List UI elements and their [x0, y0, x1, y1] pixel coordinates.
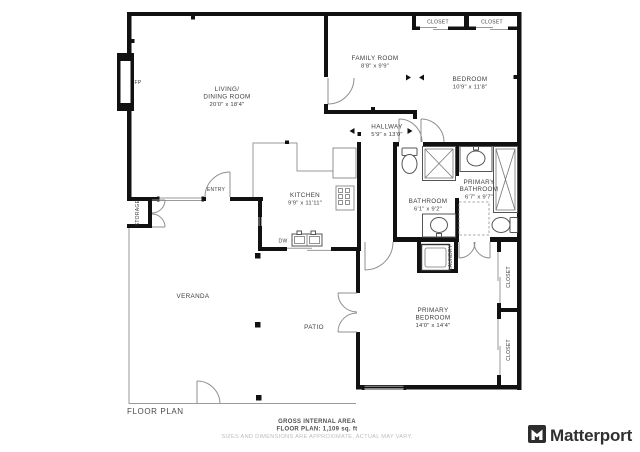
- room-dims-living: 20'0" x 18'4": [210, 102, 245, 108]
- room-label-bedroom: BEDROOM: [453, 76, 488, 83]
- room-dims-family: 8'8" x 9'9": [361, 64, 389, 70]
- room-label-living-1: LIVING/: [215, 86, 240, 93]
- footer-disclaimer: SIZES AND DIMENSIONS ARE APPROXIMATE, AC…: [221, 434, 412, 440]
- footer: GROSS INTERNAL AREA FLOOR PLAN: 1,109 sq…: [221, 419, 412, 440]
- veranda-posts: [255, 253, 262, 401]
- footer-area-label: GROSS INTERNAL AREA: [278, 419, 356, 425]
- annotation-labels: FP ENTRY STORAGE VERANDA PATIO DW LAUNDR…: [135, 20, 513, 361]
- closet-right-lower-label: CLOSET: [506, 339, 512, 361]
- storage-label: STORAGE: [135, 199, 141, 226]
- room-dims-primary-bathroom: 6'7" x 9'7": [465, 195, 493, 201]
- room-label-primary-bedroom-1: PRIMARY: [417, 307, 448, 314]
- laundry-label: LAUNDRY: [448, 244, 454, 270]
- floor-plan-title: FLOOR PLAN: [127, 407, 184, 416]
- fireplace: [117, 53, 134, 111]
- room-label-primary-bedroom-2: BEDROOM: [416, 315, 451, 322]
- closet-top-left-label: CLOSET: [427, 20, 449, 26]
- room-dims-kitchen: 9'9" x 11'11": [288, 201, 322, 207]
- veranda-label: VERANDA: [177, 293, 210, 300]
- room-label-primary-bathroom-2: BATHROOM: [460, 186, 499, 193]
- room-labels: LIVING/ DINING ROOM 20'0" x 18'4" FAMILY…: [203, 55, 498, 329]
- footer-area-value: FLOOR PLAN: 1,109 sq. ft: [277, 427, 358, 433]
- closet-right-upper-label: CLOSET: [506, 266, 512, 288]
- floor-plan-page: LIVING/ DINING ROOM 20'0" x 18'4" FAMILY…: [0, 0, 640, 452]
- room-label-hallway: HALLWAY: [371, 124, 403, 131]
- kitchen-open-boundary: [253, 141, 333, 198]
- room-dims-bathroom: 6'1" x 9'2": [414, 207, 442, 213]
- room-dims-hallway: 5'9" x 13'0": [371, 132, 402, 138]
- patio-label: PATIO: [304, 324, 324, 331]
- closet-top-right-label: CLOSET: [481, 20, 503, 26]
- fireplace-label: FP: [135, 80, 142, 86]
- dishwasher-label: DW: [279, 239, 288, 245]
- room-label-primary-bathroom-1: PRIMARY: [463, 179, 494, 186]
- room-dims-bedroom: 10'9" x 11'8": [453, 85, 487, 91]
- veranda-outline: [129, 228, 356, 404]
- floor-plan-svg: LIVING/ DINING ROOM 20'0" x 18'4" FAMILY…: [0, 0, 640, 452]
- room-label-bathroom: BATHROOM: [409, 198, 448, 205]
- room-label-living-2: DINING ROOM: [203, 94, 250, 101]
- laundry-fixtures: [422, 245, 450, 271]
- entry-label: ENTRY: [207, 187, 226, 193]
- room-label-family: FAMILY ROOM: [351, 55, 398, 62]
- room-label-kitchen: KITCHEN: [290, 192, 320, 199]
- room-dims-primary-bedroom: 14'0" x 14'4": [416, 323, 451, 329]
- matterport-logo: Matterport: [528, 425, 633, 445]
- matterport-logo-text: Matterport: [550, 426, 633, 445]
